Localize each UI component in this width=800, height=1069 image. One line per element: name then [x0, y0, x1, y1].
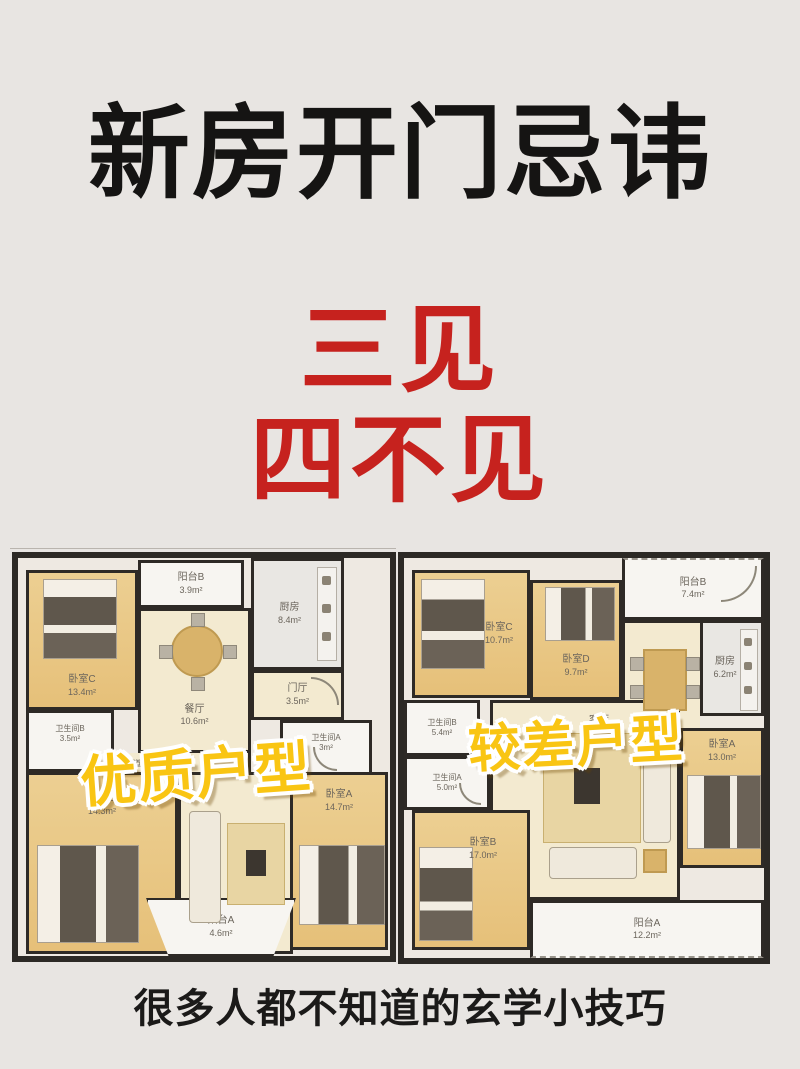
bed-icon: [419, 847, 473, 941]
kitchen-counter-icon: [317, 567, 337, 661]
room-kitchen: 厨房 6.2m²: [700, 620, 764, 716]
dining-table-icon: [171, 625, 223, 677]
room-balcony-b: 阳台B 7.4m²: [622, 558, 764, 620]
subtitle-line-2: 四不见: [0, 382, 800, 521]
door-arc-icon: [459, 783, 481, 805]
room-bedroom-c: 卧室C 10.7m²: [412, 570, 530, 698]
bed-icon: [43, 579, 117, 659]
tv-icon: [246, 850, 266, 876]
room-balcony-a: 阳台A 12.2m²: [530, 900, 764, 958]
bed-icon: [299, 845, 385, 925]
room-balcony-a: 阳台A 4.6m²: [146, 898, 296, 956]
bed-icon: [545, 587, 615, 641]
footer-text: 很多人都不知道的玄学小技巧: [0, 976, 800, 1034]
room-balcony-b: 阳台B 3.9m²: [138, 560, 244, 608]
room-bedroom-b: 卧室B 17.0m²: [412, 810, 530, 950]
poster-canvas: 新房开门忌讳 三见 四不见 卧室C 13.4m² 阳台B 3.9m²: [0, 0, 800, 1069]
door-arc-icon: [721, 566, 757, 602]
room-bedroom-d: 卧室D 9.7m²: [530, 580, 622, 700]
room-foyer: 门厅 3.5m²: [251, 670, 344, 720]
sofa-icon: [549, 847, 637, 879]
side-table-icon: [643, 849, 667, 873]
room-kitchen: 厨房 8.4m²: [251, 558, 344, 670]
room-bedroom-c: 卧室C 13.4m²: [26, 570, 138, 710]
door-arc-icon: [311, 677, 339, 705]
kitchen-counter-icon: [740, 629, 758, 711]
room-bedroom-a: 卧室A 13.0m²: [680, 728, 764, 868]
overlay-label-good: 优质户型: [77, 722, 314, 819]
page-title: 新房开门忌讳: [0, 72, 800, 219]
bed-icon: [687, 775, 761, 849]
left-plan-top-edge: [10, 548, 396, 549]
bed-icon: [421, 579, 485, 669]
rug-icon: [227, 823, 285, 905]
overlay-label-bad: 较差户型: [466, 696, 686, 782]
bed-icon: [37, 845, 139, 943]
sofa-icon: [189, 811, 221, 923]
